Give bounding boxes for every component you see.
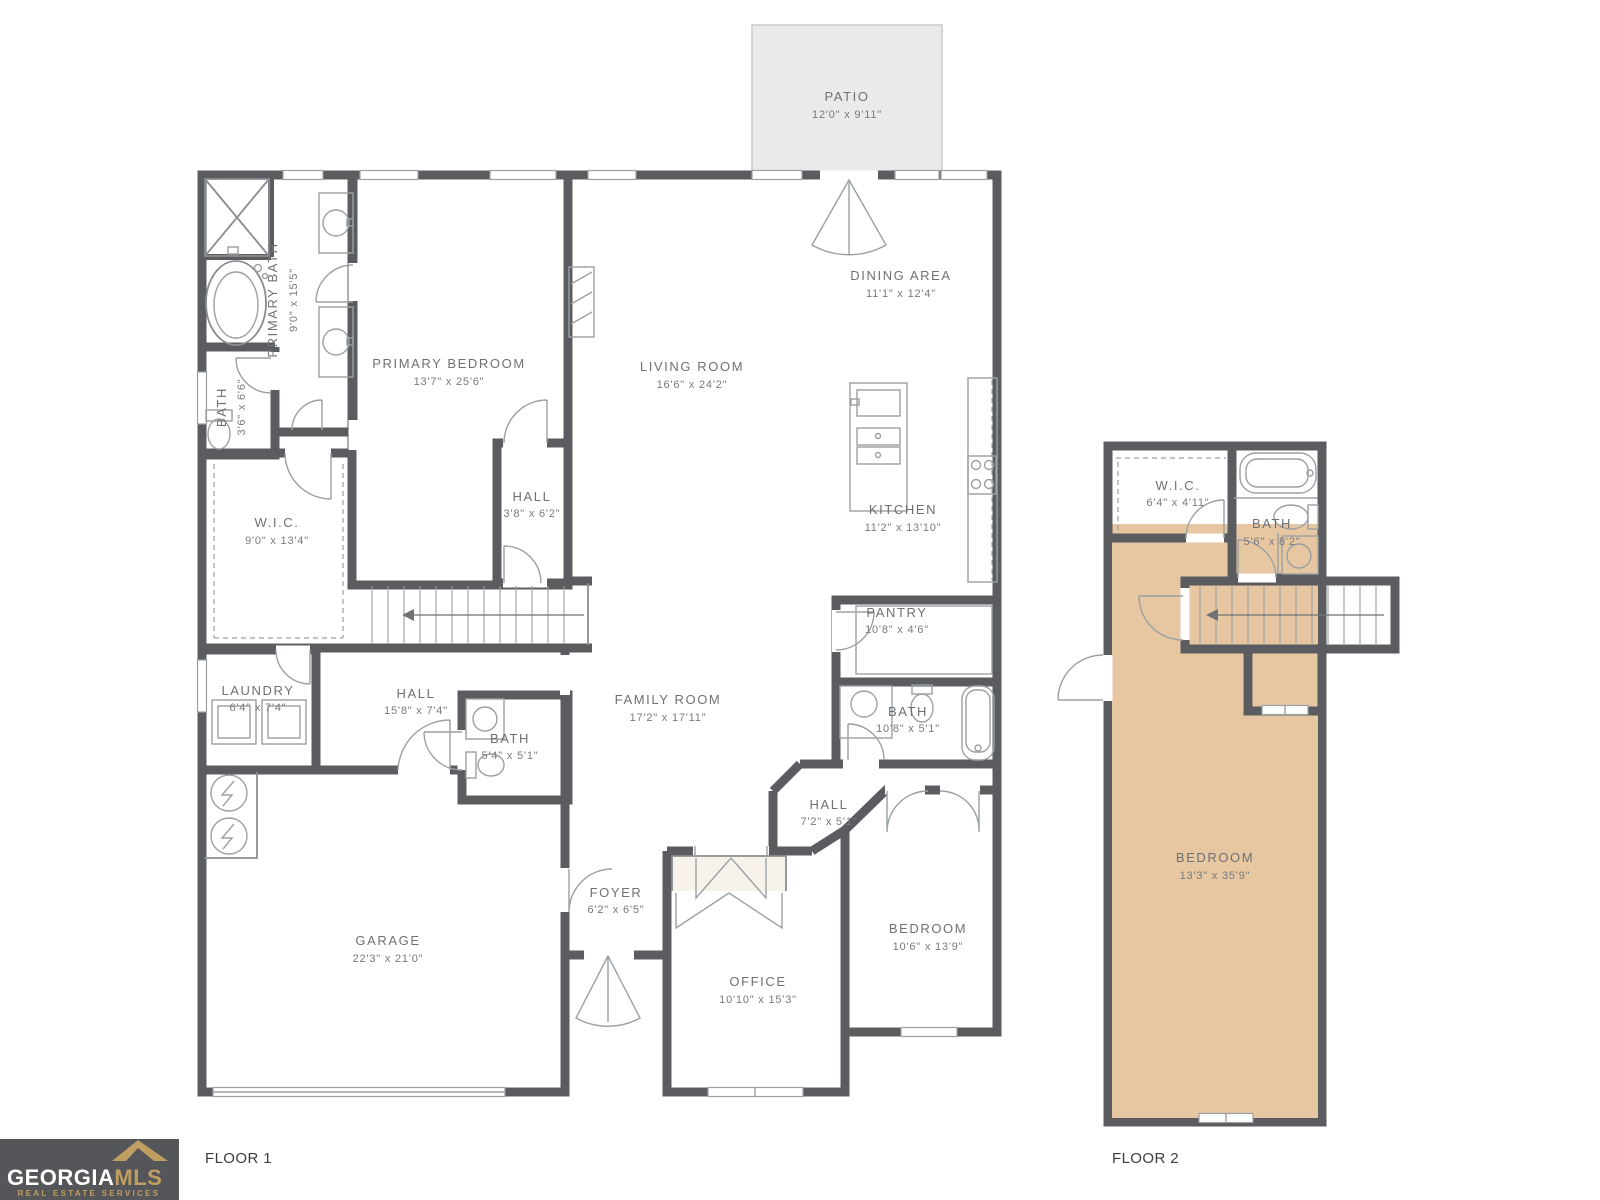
primary-bedroom-dims: 13'7" x 25'6" bbox=[414, 376, 485, 388]
hall-b-label: HALL bbox=[397, 686, 436, 701]
hall-a-label: HALL bbox=[513, 489, 552, 504]
primary-bath-label: PRIMARY BATH bbox=[265, 242, 280, 357]
shower-icon bbox=[205, 179, 269, 256]
living-room-dims: 16'6" x 24'2" bbox=[657, 379, 728, 391]
room-bedroom-1 bbox=[845, 790, 997, 1032]
patio-label: PATIO bbox=[824, 89, 869, 104]
garage-dims: 22'3" x 21'0" bbox=[353, 953, 424, 965]
laundry-label: LAUNDRY bbox=[221, 683, 294, 698]
water-heater-icon bbox=[204, 772, 257, 858]
floor1-caption: FLOOR 1 bbox=[205, 1150, 272, 1167]
hall-a-dims: 3'8" x 6'2" bbox=[504, 508, 561, 520]
bath-c-dims: 5'4" x 5'1" bbox=[482, 750, 539, 762]
floor1: PRIMARY BATH 9'0" x 15'5" BATH 3'6" x 6'… bbox=[198, 171, 998, 1097]
wic-shelving bbox=[214, 464, 343, 638]
footer: FLOOR 1 FLOOR 2 GEORGIAMLS REAL ESTATE S… bbox=[0, 1139, 1179, 1200]
wic-2-dims: 6'4" x 4'11" bbox=[1147, 497, 1210, 509]
patio-dims: 12'0" x 9'11" bbox=[812, 109, 882, 121]
fireplace-icon bbox=[569, 267, 594, 337]
garage-label: GARAGE bbox=[355, 933, 420, 948]
svg-text:GEORGIAMLS: GEORGIAMLS bbox=[7, 1165, 162, 1190]
pantry-dims: 10'8" x 4'6" bbox=[865, 624, 929, 636]
bath-2-dims: 5'6" x 8'2" bbox=[1244, 536, 1301, 548]
georgia-mls-logo: GEORGIAMLS REAL ESTATE SERVICES bbox=[0, 1139, 179, 1200]
primary-bedroom-label: PRIMARY BEDROOM bbox=[372, 356, 526, 371]
kitchen-dims: 11'2" x 13'10" bbox=[865, 522, 942, 534]
office-closet bbox=[672, 856, 786, 928]
office-label: OFFICE bbox=[729, 974, 786, 989]
logo-subtext: REAL ESTATE SERVICES bbox=[18, 1189, 161, 1198]
bedroom-2-dims: 13'3" x 35'9" bbox=[1180, 870, 1251, 882]
floor2-caption: FLOOR 2 bbox=[1112, 1150, 1179, 1167]
wic-2-label: W.I.C. bbox=[1156, 478, 1201, 493]
pantry-label: PANTRY bbox=[866, 605, 927, 620]
bath-small-label: BATH bbox=[214, 387, 229, 427]
wic-dims: 9'0" x 13'4" bbox=[245, 535, 309, 547]
logo-text-mls: MLS bbox=[114, 1165, 162, 1190]
bath-2-label: BATH bbox=[1252, 516, 1292, 531]
dining-area-label: DINING AREA bbox=[850, 268, 951, 283]
logo-text-georgia: GEORGIA bbox=[7, 1165, 114, 1190]
patio: PATIO 12'0" x 9'11" bbox=[752, 25, 942, 177]
bedroom-1-dims: 10'6" x 13'9" bbox=[893, 941, 964, 953]
floor1-labels: PRIMARY BATH 9'0" x 15'5" BATH 3'6" x 6'… bbox=[214, 242, 967, 1006]
kitchen-island bbox=[850, 383, 907, 511]
bath-hall-dims: 10'8" x 5'1" bbox=[876, 723, 940, 735]
primary-bath-dims: 9'0" x 15'5" bbox=[288, 268, 300, 332]
floor2: W.I.C. 6'4" x 4'11" BATH 5'6" x 8'2" BED… bbox=[1058, 446, 1395, 1123]
kitchen-label: KITCHEN bbox=[869, 502, 937, 517]
room-bath-c bbox=[462, 695, 568, 800]
floorplan-page: PATIO 12'0" x 9'11" bbox=[0, 0, 1600, 1200]
living-room-label: LIVING ROOM bbox=[640, 359, 744, 374]
bathtub-icon bbox=[206, 261, 268, 345]
bathtub-2-icon bbox=[1240, 453, 1316, 493]
bath-c-label: BATH bbox=[490, 731, 530, 746]
bath-hall-label: BATH bbox=[888, 704, 928, 719]
foyer-dims: 6'2" x 6'5" bbox=[588, 904, 645, 916]
laundry-dims: 6'4" x 7'4" bbox=[230, 702, 287, 714]
foyer-label: FOYER bbox=[590, 885, 643, 900]
family-room-label: FAMILY ROOM bbox=[615, 692, 722, 707]
family-room-dims: 17'2" x 17'11" bbox=[630, 712, 707, 724]
hall-c-dims: 7'2" x 5'1" bbox=[801, 816, 858, 828]
floorplan-svg: PATIO 12'0" x 9'11" bbox=[0, 0, 1600, 1200]
hall-b-dims: 15'8" x 7'4" bbox=[384, 705, 448, 717]
office-dims: 10'10" x 15'3" bbox=[719, 994, 797, 1006]
hall-c-label: HALL bbox=[810, 797, 849, 812]
bedroom-2-label: BEDROOM bbox=[1176, 850, 1254, 865]
floor1-stairs bbox=[372, 583, 588, 645]
dining-area-dims: 11'1" x 12'4" bbox=[866, 288, 936, 300]
bedroom-1-label: BEDROOM bbox=[889, 921, 967, 936]
bath-small-dims: 3'6" x 6'6" bbox=[236, 379, 248, 436]
wic-label: W.I.C. bbox=[255, 515, 300, 530]
